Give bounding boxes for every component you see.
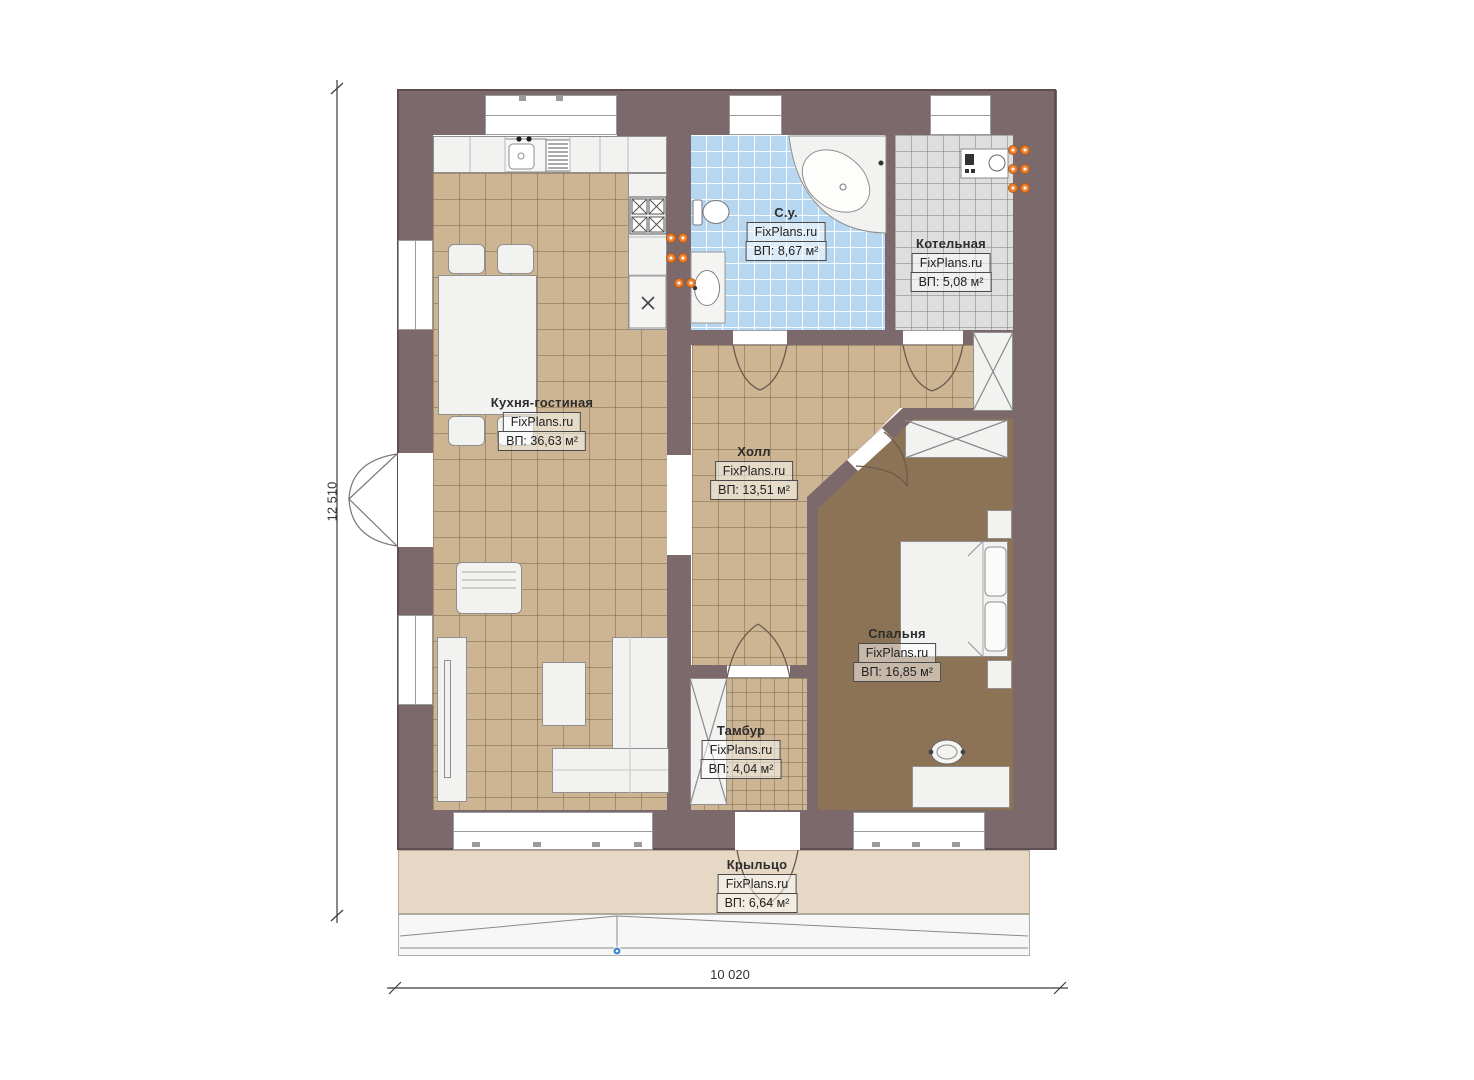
room-label-tambour: Тамбур FixPlans.ru ВП: 4,04 м²	[701, 723, 782, 779]
window-living-bottom	[453, 812, 653, 850]
room-name: Спальня	[868, 626, 926, 641]
hall-closet	[973, 332, 1013, 411]
brand-badge: FixPlans.ru	[718, 874, 797, 894]
brand-badge: FixPlans.ru	[702, 740, 781, 760]
desk	[912, 766, 1010, 808]
room-area: ВП: 36,63 м²	[498, 431, 586, 451]
door-sill-bathroom	[733, 330, 787, 345]
window-mullion-mark	[634, 842, 642, 847]
door-sill-hall-tambour	[727, 665, 790, 678]
room-area: ВП: 4,04 м²	[701, 759, 782, 779]
wall-bath-boiler	[885, 135, 895, 345]
floor-plan-canvas: Кухня-гостиная FixPlans.ru ВП: 36,63 м² …	[0, 0, 1474, 1080]
brand-badge: FixPlans.ru	[503, 412, 582, 432]
boiler-room-floor	[895, 135, 1013, 330]
window-mullion-mark	[592, 842, 600, 847]
window-mullion-mark	[912, 842, 920, 847]
window-kitchen-top	[485, 95, 617, 135]
dining-table	[438, 275, 537, 415]
window-mullion-mark	[952, 842, 960, 847]
tv-stand	[437, 637, 467, 802]
nightstand	[987, 510, 1012, 539]
wall-right	[1013, 90, 1057, 850]
room-area: ВП: 13,51 м²	[710, 480, 798, 500]
window-mullion-mark	[472, 842, 480, 847]
porch-steps	[398, 914, 1030, 956]
room-name: С.у.	[774, 205, 798, 220]
window-mullion-mark	[519, 96, 526, 101]
window-mullion-mark	[872, 842, 880, 847]
french-door-opening	[398, 453, 433, 547]
room-label-porch: Крыльцо FixPlans.ru ВП: 6,64 м²	[717, 857, 798, 913]
dimension-width: 10 020	[700, 967, 760, 982]
room-area: ВП: 8,67 м²	[746, 241, 827, 261]
window-boiler-top	[930, 95, 991, 135]
room-name: Котельная	[916, 236, 986, 251]
kitchen-counter-side	[628, 173, 667, 330]
room-area: ВП: 16,85 м²	[853, 662, 941, 682]
room-label-hall: Холл FixPlans.ru ВП: 13,51 м²	[710, 444, 798, 500]
passage-living-hall	[667, 455, 691, 555]
nightstand	[987, 660, 1012, 689]
brand-badge: FixPlans.ru	[858, 643, 937, 663]
brand-badge: FixPlans.ru	[912, 253, 991, 273]
brand-badge: FixPlans.ru	[715, 461, 794, 481]
dining-chair	[497, 244, 534, 274]
entrance-door-opening	[735, 812, 800, 850]
room-label-bedroom: Спальня FixPlans.ru ВП: 16,85 м²	[853, 626, 941, 682]
dining-chair	[448, 416, 485, 446]
kitchen-counter-top	[433, 136, 667, 173]
room-label-kitchen-living: Кухня-гостиная FixPlans.ru ВП: 36,63 м²	[491, 395, 593, 451]
window-mullion-mark	[533, 842, 541, 847]
french-door-leaves	[349, 454, 397, 546]
bedroom-wardrobe	[905, 420, 1008, 458]
room-name: Тамбур	[717, 723, 765, 738]
armchair	[456, 562, 522, 614]
room-area: ВП: 5,08 м²	[911, 272, 992, 292]
room-name: Кухня-гостиная	[491, 395, 593, 410]
brand-badge: FixPlans.ru	[747, 222, 826, 242]
coffee-table	[542, 662, 586, 726]
room-area: ВП: 6,64 м²	[717, 893, 798, 913]
porch-deck	[398, 850, 1030, 914]
room-name: Холл	[737, 444, 770, 459]
wall-hall-bedroom	[807, 497, 818, 810]
window-left-1	[398, 240, 433, 330]
sofa-section-bottom	[552, 748, 669, 793]
window-mullion-mark	[556, 96, 563, 101]
dimension-height: 12 510	[325, 478, 340, 526]
room-label-boiler: Котельная FixPlans.ru ВП: 5,08 м²	[911, 236, 992, 292]
dining-chair	[448, 244, 485, 274]
room-label-bathroom: С.у. FixPlans.ru ВП: 8,67 м²	[746, 205, 827, 261]
room-name: Крыльцо	[727, 857, 788, 872]
window-left-2	[398, 615, 433, 705]
tv-screen	[444, 660, 451, 778]
window-bathroom-top	[729, 95, 782, 135]
door-sill-boiler	[903, 330, 963, 345]
